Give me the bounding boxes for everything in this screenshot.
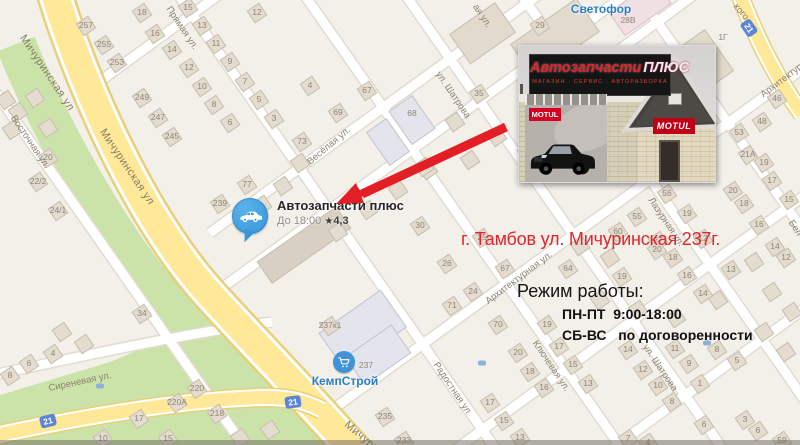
building-number: 12	[252, 7, 261, 17]
building-number: 4	[51, 348, 56, 358]
building-number: 67	[500, 263, 509, 273]
building-number: 56	[662, 188, 671, 198]
building-number: 7	[243, 76, 248, 86]
poi-svetofor[interactable]: Светофор	[571, 2, 631, 16]
building-number: 70	[493, 319, 502, 329]
building-number: 249	[135, 92, 149, 102]
building-number: 13	[583, 378, 592, 388]
schedule-title: Режим работы:	[517, 281, 644, 302]
building-number: 17	[767, 175, 776, 185]
building-number: 17	[485, 397, 494, 407]
building-number: 247	[151, 112, 165, 122]
building-number: 8	[715, 344, 720, 354]
road-shield: 21	[284, 395, 302, 409]
building	[38, 118, 59, 139]
building	[25, 88, 46, 109]
building-number: 6	[27, 358, 32, 368]
building-number: 14	[698, 288, 707, 298]
photo-door	[659, 140, 680, 182]
building-number: 239	[213, 198, 227, 208]
building-number: 15	[499, 415, 508, 425]
building	[260, 420, 281, 441]
building-number: 220	[190, 383, 204, 393]
building	[52, 322, 73, 343]
building-number: 218	[210, 408, 224, 418]
building-number: 20	[728, 185, 737, 195]
building-number: 18	[525, 366, 534, 376]
street-label: Радостная ул	[431, 360, 473, 416]
building	[600, 248, 621, 269]
building-number: 69	[333, 107, 342, 117]
building	[782, 302, 800, 323]
black-car-image	[527, 132, 605, 180]
building-number: 12	[781, 252, 790, 262]
building-number: 12	[184, 62, 193, 72]
building-number: 71	[447, 300, 456, 310]
building-number: 21А	[740, 149, 755, 159]
building-number: 1	[698, 378, 703, 388]
building	[744, 252, 765, 273]
sign-title: Автозапчасти	[530, 60, 641, 76]
map-canvas[interactable]: 2572552532492472452397734237к12372352331…	[0, 0, 800, 445]
sign-title-accent: ПЛЮС	[643, 60, 689, 76]
building-number: 15	[568, 359, 577, 369]
building-number: 8	[212, 99, 217, 109]
map-pin-autoparts[interactable]	[232, 198, 268, 234]
building-number: 19	[759, 157, 768, 167]
building-number: 8	[8, 370, 13, 380]
building-number: 20	[513, 347, 522, 357]
building-number: 18	[137, 7, 146, 17]
schedule-weekend: СБ-ВС по договоренности	[562, 327, 753, 343]
building-number: 53	[734, 127, 743, 137]
map-pin-label[interactable]: Автозапчасти плюс До 18:00 ★4,3	[277, 198, 404, 227]
building-number: 16	[682, 270, 691, 280]
poi-hours: До 18:00	[277, 215, 321, 227]
storefront-photo: АвтозапчастиПЛЮС МАГАЗИН · СЕРВИС · АВТО…	[518, 45, 716, 183]
map-pin-tail	[242, 229, 256, 244]
building-number: 14	[167, 44, 176, 54]
building-number: 13	[197, 20, 206, 30]
building-number: 13	[726, 264, 735, 274]
address-text: г. Тамбов ул. Мичуринская 237г.	[461, 229, 720, 250]
photo-shop-sign: АвтозапчастиПЛЮС МАГАЗИН · СЕРВИС · АВТО…	[529, 54, 671, 96]
rating-star-icon: ★	[324, 216, 333, 227]
building-number: 220А	[167, 397, 187, 407]
building-number: 19	[617, 271, 626, 281]
building-number: 3	[272, 113, 277, 123]
street-label: Весёлая ул.	[305, 125, 353, 167]
building-number: 15	[183, 2, 192, 12]
building-number: 35	[474, 88, 483, 98]
building-number: 257	[79, 20, 93, 30]
building	[460, 150, 481, 171]
building	[487, 127, 508, 148]
building-number: 237	[359, 360, 373, 370]
building-number: 237к1	[319, 320, 342, 330]
building-number: 33	[419, 161, 428, 171]
poi-rating: 4,3	[333, 215, 348, 227]
building-number: 16	[754, 219, 763, 229]
building-number: 6	[756, 425, 761, 435]
building-number: 34	[137, 308, 146, 318]
building-number: 253	[110, 57, 124, 67]
building-number: 16	[150, 28, 159, 38]
building-number: 46	[772, 93, 781, 103]
building-number: 4	[308, 80, 313, 90]
bottom-edge-bar	[0, 440, 800, 445]
building-number: 255	[97, 39, 111, 49]
building	[273, 176, 294, 197]
building-number: 18	[668, 252, 677, 262]
building-number: 19	[682, 208, 691, 218]
building	[762, 282, 783, 303]
building	[776, 342, 797, 363]
building-number: 77	[242, 179, 251, 189]
motul-wall-sign: MOTUL	[653, 118, 695, 134]
motul-banner: MOTUL	[525, 94, 607, 182]
building-number: 235	[378, 411, 392, 421]
street-label: Бел	[786, 218, 800, 238]
building-number: 9	[687, 358, 692, 368]
building-number: 9	[228, 56, 233, 66]
building-number: 24	[468, 286, 477, 296]
building-number: 15	[784, 194, 793, 204]
building-number: 5	[257, 94, 262, 104]
building-number: 1Г	[718, 32, 727, 42]
building-number: 11	[212, 38, 221, 48]
building-number: 30	[415, 220, 424, 230]
building	[74, 334, 95, 355]
building-number: 3	[743, 414, 748, 424]
building-number: 14	[770, 241, 779, 251]
building-number: 73	[297, 136, 306, 146]
schedule-weekdays: ПН-ПТ 9:00-18:00	[562, 306, 682, 322]
building-number: 67	[362, 85, 371, 95]
building-number: 29	[535, 20, 544, 30]
building-number: 6	[228, 117, 233, 127]
building-number: 14	[623, 344, 632, 354]
building-number: 17	[134, 413, 143, 423]
building-number: 24/1	[50, 205, 67, 215]
sign-subtitle: МАГАЗИН · СЕРВИС · АВТОРАЗБОРКА	[530, 79, 670, 85]
building-number: 245	[165, 131, 179, 141]
building-number: 18	[739, 198, 748, 208]
building-number: 11	[671, 343, 680, 353]
building-number: 48	[757, 116, 766, 126]
building-number: 5	[735, 355, 740, 365]
building-number: 10	[653, 380, 662, 390]
building-number: 55	[632, 211, 641, 221]
shopping-cart-icon[interactable]	[333, 351, 355, 373]
building-number: 28В	[620, 15, 635, 25]
poi-title: Автозапчасти плюс	[277, 198, 404, 213]
motul-logo-chip: MOTUL	[529, 108, 561, 121]
poi-subtitle: До 18:00 ★4,3	[277, 215, 404, 227]
poi-kempstroy[interactable]: КемпСтрой	[312, 374, 379, 388]
building-number: 19	[542, 319, 551, 329]
poi-dot-icon	[478, 361, 486, 366]
building-number: 8	[670, 396, 675, 406]
street-label: ая ул.	[470, 2, 494, 30]
building	[754, 322, 775, 343]
building-number: 6	[702, 419, 707, 429]
building-number: 16	[539, 382, 548, 392]
building-number: 10	[197, 81, 206, 91]
building-number: 68	[407, 108, 416, 118]
street-label: Мичуринская ул	[97, 127, 157, 208]
poi-dot-icon	[96, 384, 104, 389]
building-number: 12	[638, 364, 647, 374]
building-number: 64	[563, 263, 572, 273]
street-label: Сиреневая ул.	[48, 370, 113, 394]
street-label: Мичуринская ул	[17, 33, 77, 114]
car-icon	[238, 208, 262, 224]
road-shield: 21	[39, 413, 57, 429]
building-number: 26	[442, 258, 451, 268]
banner-header-strip	[525, 94, 607, 105]
building-number: 22/2	[30, 176, 47, 186]
